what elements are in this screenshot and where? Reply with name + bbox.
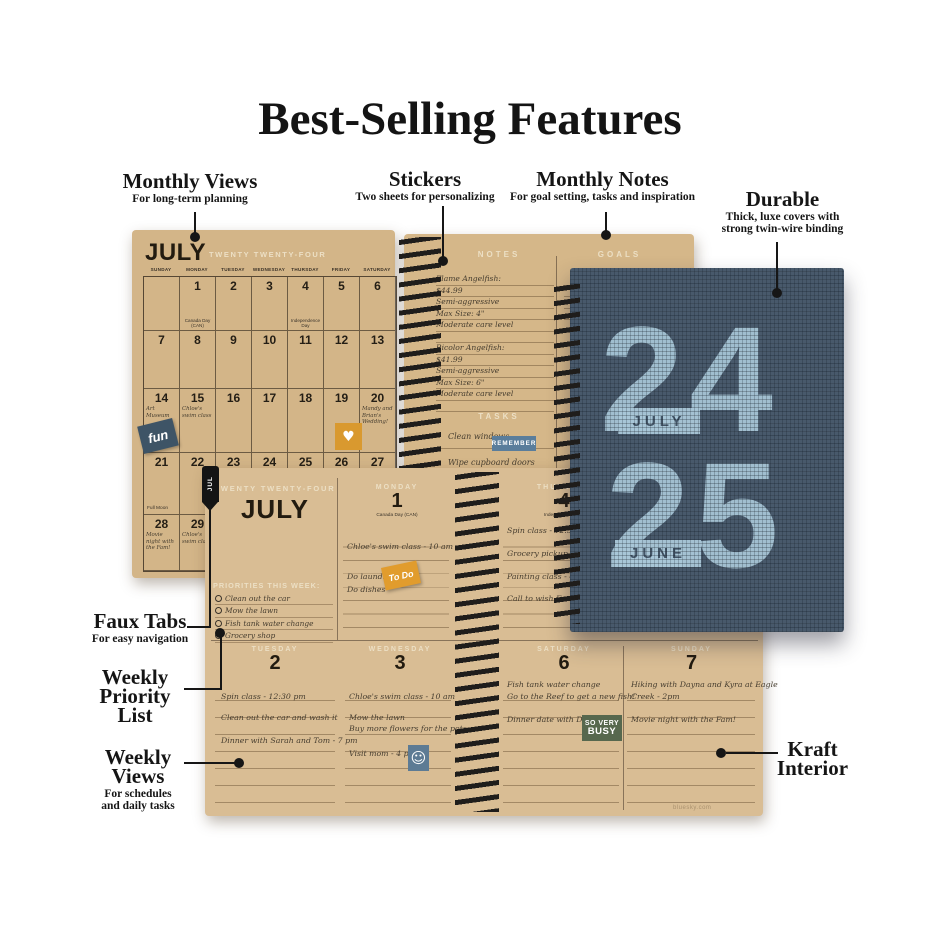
cell-note-wedding: Mandy and Brian's Wedding!	[362, 406, 394, 426]
cover-month-june: JUNE	[615, 540, 701, 567]
month-cell: 16	[216, 389, 252, 453]
sunday-rules	[627, 684, 755, 810]
day-column-header-wednesday: WEDNESDAY 3	[345, 646, 455, 673]
day-number: 28	[144, 517, 179, 531]
callout-weekly-views: Weekly Views For schedules and daily tas…	[78, 748, 198, 812]
priorities-label: PRIORITIES THIS WEEK:	[213, 581, 320, 590]
day-header-saturday: SATURDAY	[359, 267, 395, 272]
monthly-day-header-row: SUNDAY MONDAY TUESDAY WEDNESDAY THURSDAY…	[143, 267, 395, 272]
month-cell: 4Independence Day	[288, 277, 324, 331]
month-cell: 7	[144, 331, 180, 389]
monday-holiday: Canada Day (CAN)	[345, 513, 449, 518]
fun-sticker-text: fun	[146, 426, 169, 445]
cover-month-july: JULY	[618, 408, 700, 434]
cover-month-july-text: JULY	[633, 413, 686, 430]
note-line: $41.99	[436, 355, 554, 367]
monday-number: 1	[345, 491, 449, 511]
leader-line-weekly-priority-v	[220, 634, 222, 690]
month-cell: 10	[252, 331, 288, 389]
saturday-number: 6	[505, 653, 623, 673]
spiral-binding-weekly	[455, 472, 499, 812]
weekly-year-words: TWENTY TWENTY-FOUR	[205, 484, 345, 493]
entry: Movie night with the Fam!	[631, 715, 736, 724]
smiley-sticker: ☺	[408, 745, 429, 771]
day-number: 14	[144, 391, 179, 405]
entry: Creek - 2pm	[631, 692, 680, 701]
spiral-binding-monthly	[399, 237, 441, 479]
note-line: Moderate care level	[436, 389, 554, 401]
month-cell: 1Canada Day (CAN)	[180, 277, 216, 331]
month-cell: 13	[360, 331, 396, 389]
callout-durable: Durable Thick, luxe covers with strong t…	[700, 190, 865, 235]
callout-stickers-sub: Two sheets for personalizing	[350, 191, 500, 203]
remember-sticker-text: REMEMBER	[492, 440, 537, 447]
cell-note-canada-day: Canada Day (CAN)	[180, 318, 215, 328]
day-header-tuesday: TUESDAY	[215, 267, 251, 272]
note-line: Max Size: 4"	[436, 309, 554, 321]
day-number: 6	[360, 279, 395, 293]
month-cell: 6	[360, 277, 396, 331]
day-column-header-saturday: SATURDAY 6	[505, 646, 623, 673]
entry: Do dishes	[347, 585, 386, 594]
day-header-wednesday: WEDNESDAY	[251, 267, 287, 272]
callout-faux-tabs-sub: For easy navigation	[75, 633, 205, 645]
day-column-header-tuesday: TUESDAY 2	[213, 646, 337, 673]
planner-cover: 24 JULY 25 JUNE	[570, 268, 844, 632]
day-number: 19	[324, 391, 359, 405]
month-cell: 3	[252, 277, 288, 331]
entry: Chloe's swim class - 10 am	[347, 542, 453, 551]
cell-note-full-moon: Full Moon	[144, 506, 179, 511]
callout-weekly-views-sub1: For schedules	[78, 788, 198, 800]
callout-durable-sub1: Thick, luxe covers with	[700, 211, 865, 223]
priority-text: Grocery shop	[225, 631, 275, 640]
page-title: Best-Selling Features	[0, 92, 940, 146]
callout-monthly-notes: Monthly Notes For goal setting, tasks an…	[505, 170, 700, 203]
day-number: 16	[216, 391, 251, 405]
smiley-icon: ☺	[411, 749, 427, 767]
day-header-monday: MONDAY	[179, 267, 215, 272]
note-line: Bicolor Angelfish:	[436, 343, 554, 355]
monthly-month-title: JULY	[145, 239, 206, 267]
month-cell: 2	[216, 277, 252, 331]
goals-header: GOALS	[562, 250, 677, 259]
callout-stickers-label: Stickers	[350, 170, 500, 189]
callout-faux-tabs-label: Faux Tabs	[75, 612, 205, 631]
faux-tab-ribbon-line	[209, 504, 211, 628]
priority-text: Clean out the car	[225, 594, 290, 603]
day-number: 8	[180, 333, 215, 347]
day-header-friday: FRIDAY	[323, 267, 359, 272]
day-number: 25	[288, 455, 323, 469]
jul-faux-tab: JUL	[202, 466, 219, 502]
month-cell: 17	[252, 389, 288, 453]
priority-bullet	[215, 595, 222, 602]
day-header-sunday: SUNDAY	[143, 267, 179, 272]
note-line: Semi-aggressive	[436, 366, 554, 378]
entry: Spin class - 12:30 pm	[221, 692, 306, 701]
day-header-thursday: THURSDAY	[287, 267, 323, 272]
callout-durable-label: Durable	[700, 190, 865, 209]
spiral-binding-cover	[554, 284, 580, 624]
so-very-busy-sticker: SO VERY BUSY	[582, 715, 622, 741]
day-number: 13	[360, 333, 395, 347]
cover-month-june-text: JUNE	[630, 545, 686, 562]
footer-url: bluesky.com	[673, 805, 711, 811]
task-item: Wipe cupboard doors	[448, 458, 535, 467]
leader-dot-weekly-priority	[215, 628, 225, 638]
leader-line-weekly-views	[184, 762, 238, 764]
jul-tab-label: JUL	[207, 476, 214, 491]
entry: Go to the Reef to get a new fish!	[507, 692, 635, 701]
remember-sticker: REMEMBER	[492, 436, 536, 451]
cell-note-swim-class: Chloe's swim class	[182, 406, 214, 419]
day-number: 21	[144, 455, 179, 469]
entry: Dinner date with Dan	[507, 715, 592, 724]
notes-lines: Flame Angelfish: $44.99 Semi-aggressive …	[436, 274, 554, 412]
tuesday-number: 2	[213, 653, 337, 673]
callout-weekly-priority-l3: List	[75, 706, 195, 725]
leader-line-durable	[776, 242, 778, 290]
busy-sticker-line2: BUSY	[588, 728, 616, 736]
callout-monthly-views: Monthly Views For long-term planning	[115, 172, 265, 205]
wednesday-number: 3	[345, 653, 455, 673]
tasks-header: TASKS	[444, 412, 554, 421]
notes-header: NOTES	[444, 250, 554, 259]
day-number: 20	[360, 391, 395, 405]
day-column-header-sunday: SUNDAY 7	[629, 646, 754, 673]
heart-icon: ♥	[342, 429, 355, 445]
month-cell: 28Movie night with the Fam!	[144, 515, 180, 571]
day-number: 23	[216, 455, 251, 469]
month-cell: 8	[180, 331, 216, 389]
priority-item: Grocery shop	[215, 630, 333, 643]
leader-dot-stickers	[438, 256, 448, 266]
entry: Buy more flowers for the pots	[349, 724, 467, 733]
callout-monthly-notes-sub: For goal setting, tasks and inspiration	[505, 191, 700, 203]
sunday-number: 7	[629, 653, 754, 673]
day-number: 11	[288, 333, 323, 347]
cell-note-movie-night: Movie night with the Fam!	[146, 532, 178, 552]
callout-durable-sub2: strong twin-wire binding	[700, 223, 865, 235]
day-number: 15	[180, 391, 215, 405]
day-number: 17	[252, 391, 287, 405]
entry: Chloe's swim class - 10 am	[349, 692, 455, 701]
product-feature-image: Best-Selling Features Monthly Views For …	[0, 0, 940, 940]
callout-monthly-notes-label: Monthly Notes	[505, 170, 700, 189]
day-number: 9	[216, 333, 251, 347]
priority-bullet	[215, 607, 222, 614]
weekly-divider-v2	[623, 646, 624, 810]
callout-monthly-views-sub: For long-term planning	[115, 193, 265, 205]
leader-line-monthly-notes	[605, 212, 607, 232]
callout-weekly-views-l2: Views	[78, 767, 198, 786]
monthly-year-words: TWENTY TWENTY-FOUR	[209, 250, 326, 259]
day-number: 3	[252, 279, 287, 293]
cell-note-independence-day: Independence Day	[288, 318, 323, 328]
priority-bullet	[215, 620, 222, 627]
month-cell: 20Mandy and Brian's Wedding!	[360, 389, 396, 453]
leader-line-faux-tabs	[187, 626, 211, 628]
day-number: 10	[252, 333, 287, 347]
day-number: 1	[180, 279, 215, 293]
day-number: 2	[216, 279, 251, 293]
weekly-divider-v1	[337, 478, 338, 640]
entry: Fish tank water change	[507, 680, 600, 689]
leader-line-weekly-priority-h	[184, 688, 222, 690]
heart-sticker: ♥	[335, 423, 362, 450]
callout-monthly-views-label: Monthly Views	[115, 172, 265, 191]
entry: Dinner with Sarah and Tom - 7 pm	[221, 736, 358, 745]
leader-dot-durable	[772, 288, 782, 298]
weekly-month-title: JULY	[205, 494, 345, 525]
callout-faux-tabs: Faux Tabs For easy navigation	[75, 612, 205, 645]
day-number: 5	[324, 279, 359, 293]
entry: Clean out the car and wash it	[221, 713, 338, 722]
leader-dot-monthly-notes	[601, 230, 611, 240]
callout-kraft-interior-l2: Interior	[755, 759, 870, 778]
leader-line-monthly-views	[194, 212, 196, 234]
day-column-header-monday: MONDAY 1 Canada Day (CAN)	[345, 484, 449, 518]
priority-item: Fish tank water change	[215, 617, 333, 630]
month-cell: 9	[216, 331, 252, 389]
entry: Hiking with Dayna and Kyra at Eagle	[631, 680, 778, 689]
note-line: Max Size: 6"	[436, 378, 554, 390]
month-cell: 12	[324, 331, 360, 389]
month-cell: 21Full Moon	[144, 453, 180, 515]
note-line: Flame Angelfish:	[436, 274, 554, 286]
day-number: 4	[288, 279, 323, 293]
saturday-rules	[503, 684, 619, 810]
callout-kraft-interior: Kraft Interior	[755, 740, 870, 778]
wednesday-rules	[345, 684, 451, 810]
leader-line-stickers	[442, 206, 444, 258]
leader-dot-kraft-interior	[716, 748, 726, 758]
day-number: 18	[288, 391, 323, 405]
note-line: $44.99	[436, 286, 554, 298]
day-number: 7	[144, 333, 179, 347]
month-cell	[144, 277, 180, 331]
day-number: 24	[252, 455, 287, 469]
month-cell: 5	[324, 277, 360, 331]
day-number: 27	[360, 455, 395, 469]
entry: Mow the lawn	[349, 713, 405, 722]
priority-item: Clean out the car	[215, 592, 333, 605]
note-line: Moderate care level	[436, 320, 554, 332]
day-number: 12	[324, 333, 359, 347]
leader-dot-weekly-views	[234, 758, 244, 768]
callout-weekly-views-sub2: and daily tasks	[78, 800, 198, 812]
month-cell: 18	[288, 389, 324, 453]
leader-line-kraft-interior	[726, 752, 778, 754]
cell-note-art-museum: Art Museum	[146, 406, 178, 419]
callout-stickers: Stickers Two sheets for personalizing	[350, 170, 500, 203]
note-line	[436, 332, 554, 344]
leader-dot-monthly-views	[190, 232, 200, 242]
priority-text: Fish tank water change	[225, 619, 314, 628]
entry: Visit mom - 4 pm	[349, 749, 416, 758]
callout-weekly-priority: Weekly Priority List	[75, 668, 195, 725]
month-cell: 11	[288, 331, 324, 389]
month-cell: 15Chloe's swim class	[180, 389, 216, 453]
day-number: 26	[324, 455, 359, 469]
note-line	[436, 401, 554, 413]
priority-text: Mow the lawn	[225, 606, 278, 615]
priority-item: Mow the lawn	[215, 605, 333, 618]
note-line: Semi-aggressive	[436, 297, 554, 309]
tuesday-rules	[215, 684, 335, 810]
todo-sticker-text: To Do	[388, 568, 415, 583]
